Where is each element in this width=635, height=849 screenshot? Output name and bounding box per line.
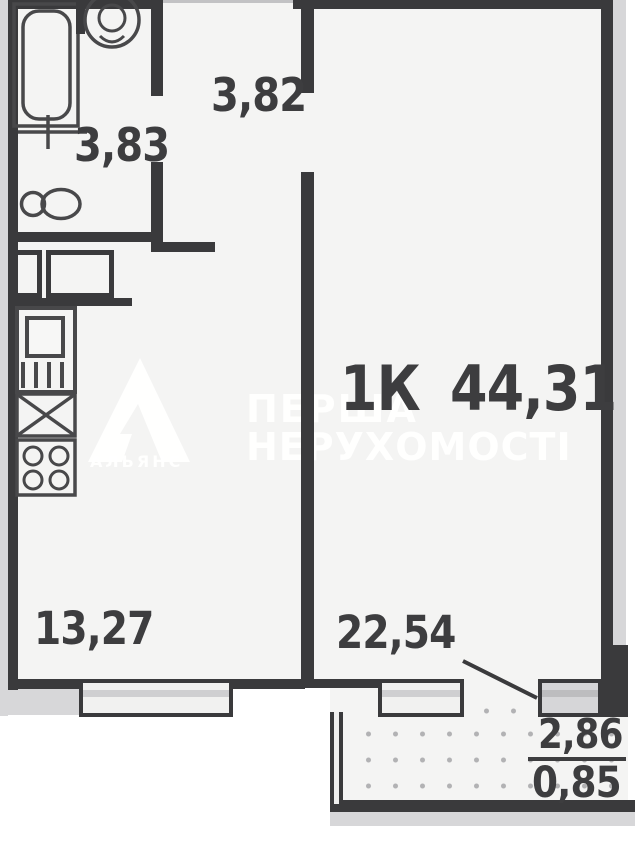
hallway-area-label: 3,82 xyxy=(211,72,306,118)
balcony-reduced-area-label: 0,85 xyxy=(532,762,621,805)
living-window-icon xyxy=(378,679,464,717)
outer-shadow-left xyxy=(0,0,8,716)
entrance-opening xyxy=(163,0,293,3)
wall-kitchen-bottom-right xyxy=(232,679,305,689)
agency-logo-icon xyxy=(88,358,190,462)
apartment-title-label: 1К 44,31 xyxy=(340,358,616,420)
bathroom-area-label: 3,83 xyxy=(74,122,169,168)
wall-kitchen-bottom-left xyxy=(8,679,80,689)
washing-machine-icon xyxy=(15,392,77,438)
window-glass-line xyxy=(382,690,460,697)
wall-balcony-left xyxy=(330,712,343,804)
toilet-icon xyxy=(14,182,86,230)
floor-plan: АЛЬЯНС ПЕРША НЕРУХОМОСТІ xyxy=(0,0,635,849)
kitchen-area-label: 13,27 xyxy=(34,606,153,651)
wall-closet-bottom xyxy=(12,298,132,306)
window-glass-line xyxy=(542,690,598,697)
wall-bathroom-upper xyxy=(151,0,163,96)
wall-right xyxy=(601,0,613,692)
wall-top-right xyxy=(293,0,613,9)
wall-closet-top xyxy=(151,242,215,252)
balcony-area-label: 2,86 xyxy=(538,714,623,755)
wall-bathroom-bottom xyxy=(8,232,155,242)
outer-shadow-bottom-left xyxy=(0,689,80,715)
kitchen-window-icon xyxy=(79,679,233,717)
window-glass-line xyxy=(83,690,229,697)
outer-shadow-right xyxy=(613,0,626,648)
wall-living-lower xyxy=(301,172,314,688)
kitchen-drainer-hatch xyxy=(21,362,71,388)
balcony-door-icon xyxy=(455,655,545,705)
wall-pillar-bottom-right xyxy=(601,645,628,717)
washbasin-icon xyxy=(80,0,146,54)
watermark-logo-caption: АЛЬЯНС xyxy=(90,454,183,470)
wardrobe-icon xyxy=(12,250,42,298)
stove-icon xyxy=(15,438,77,497)
kitchen-sink-icon xyxy=(25,316,65,358)
outer-shadow-balcony xyxy=(330,812,635,826)
watermark-line2: НЕРУХОМОСТІ xyxy=(246,428,572,466)
living-area-label: 22,54 xyxy=(336,610,455,655)
wardrobe-icon xyxy=(46,250,114,298)
wall-living-bottom-left xyxy=(314,679,380,688)
